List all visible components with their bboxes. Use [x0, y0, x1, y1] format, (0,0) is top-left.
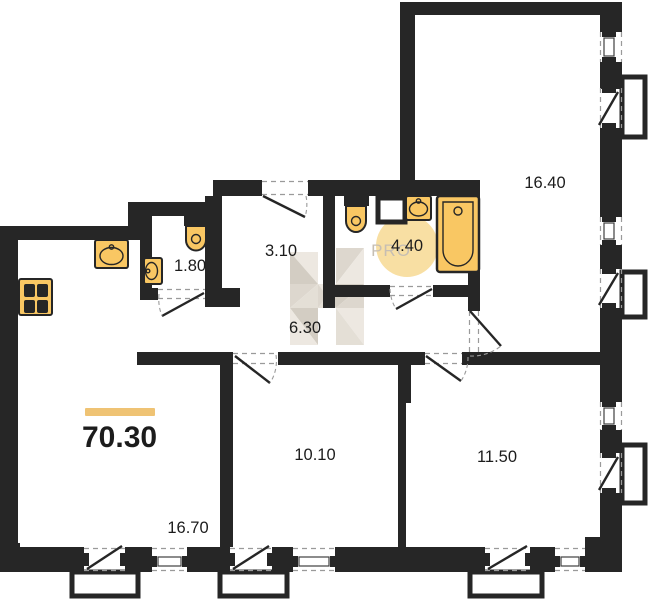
area-label-room-11: 11.50 — [477, 448, 517, 466]
window-right-3 — [601, 402, 622, 430]
balcony-outline — [220, 572, 287, 596]
stove — [19, 279, 52, 315]
wall-segment — [585, 537, 622, 572]
total-area: 70.30 — [82, 408, 157, 454]
total-area-underline — [85, 408, 155, 416]
wall-segment — [125, 547, 152, 572]
window-bottom-1 — [152, 549, 187, 571]
wall-segment — [433, 285, 468, 297]
total-area-label: 70.30 — [82, 421, 157, 454]
entrance-door — [262, 182, 308, 218]
window-bottom-2 — [293, 549, 335, 571]
wall-segment — [335, 547, 485, 572]
kitchen-sink — [95, 240, 128, 268]
wall-segment — [272, 547, 293, 572]
wall-segment — [398, 403, 406, 547]
area-label-hallway: 6.30 — [289, 319, 321, 337]
french-door-bottom-1 — [84, 546, 125, 571]
wall-segment — [335, 285, 390, 297]
basin-bathroom — [406, 196, 431, 220]
vent-shaft — [378, 198, 405, 222]
wall-segment — [140, 288, 158, 300]
wall-segment — [220, 358, 233, 547]
floor-plan-drawing: PRO — [0, 0, 650, 600]
balcony-outline — [622, 272, 645, 317]
wall-segment — [308, 180, 480, 196]
wall-segment — [18, 547, 84, 572]
wall-segment — [0, 226, 130, 240]
door-wc — [158, 290, 205, 317]
window-right-2 — [601, 217, 622, 245]
area-label-room-10: 10.10 — [294, 446, 335, 464]
area-label-bedroom: 16.40 — [524, 174, 565, 192]
area-label-living: 16.70 — [167, 519, 208, 537]
balcony-door-right-2 — [599, 269, 622, 308]
wall-segment — [530, 547, 555, 572]
window-bottom-3 — [555, 549, 585, 571]
door-bedroom — [470, 311, 502, 356]
wall-segment — [600, 128, 622, 217]
balcony-outline — [622, 77, 645, 137]
area-label-corridor: 3.10 — [265, 242, 297, 260]
toilet-wc — [184, 216, 209, 251]
wall-segment — [205, 288, 240, 307]
wall-segment — [600, 308, 622, 402]
door-room-11 — [425, 354, 468, 382]
wall-segment — [137, 352, 233, 365]
wall-segment — [600, 62, 622, 89]
wall-segment — [462, 352, 600, 365]
wall-segment — [400, 2, 622, 15]
basin-wc — [144, 258, 162, 284]
balcony-outline — [470, 572, 542, 596]
floor-plan: PRO — [0, 0, 650, 600]
wall-segment — [323, 196, 335, 308]
wall-segment — [128, 202, 213, 216]
door-room-10 — [233, 354, 278, 384]
wall-segment — [0, 543, 20, 572]
wall-segment — [600, 430, 622, 453]
balcony-outline — [622, 445, 645, 503]
wall-segment — [0, 226, 18, 572]
balcony-door-right-3 — [599, 453, 622, 493]
bathtub — [437, 196, 479, 272]
wall-segment — [600, 2, 622, 32]
balcony-door-right-1 — [599, 88, 622, 128]
wall-segment — [398, 358, 411, 403]
wall-segment — [187, 547, 230, 572]
window-right-1 — [601, 32, 622, 62]
wall-segment — [400, 2, 415, 185]
french-door-bottom-2 — [230, 546, 272, 571]
wall-segment — [213, 180, 262, 196]
area-label-bathroom: 4.40 — [391, 237, 423, 255]
balcony-outline — [72, 572, 138, 596]
wall-segment — [600, 245, 622, 269]
area-label-wc: 1.80 — [174, 257, 206, 275]
wall-segment — [468, 297, 480, 311]
french-door-bottom-3 — [485, 546, 530, 571]
door-bathroom — [390, 287, 433, 310]
toilet-bathroom — [344, 196, 369, 232]
